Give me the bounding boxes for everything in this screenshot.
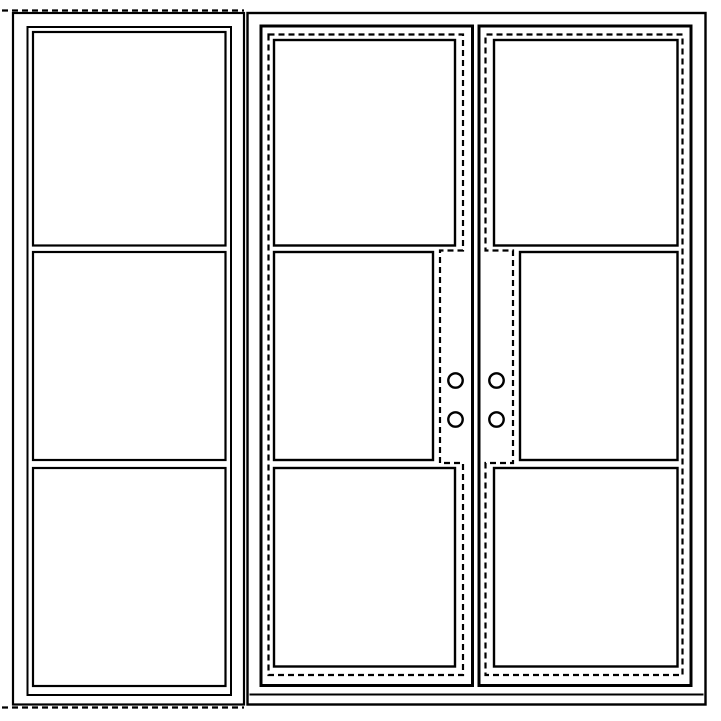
left-leaf-glass-lite-middle (274, 252, 433, 460)
right-leaf-glass-lite-top (494, 40, 678, 246)
right-door-leaf (479, 26, 691, 686)
left-door-leaf (261, 26, 473, 686)
left-leaf-handle-hole-lower (448, 412, 462, 426)
right-leaf-handle-hole-lower (489, 412, 503, 426)
right-leaf-outline (479, 26, 691, 686)
left-leaf-glass-lite-bottom (274, 468, 455, 667)
drawing-canvas (0, 0, 721, 721)
sidelite-glass-lite-top (33, 32, 226, 246)
sidelite-outer-frame (13, 13, 244, 705)
sidelite-glass-lite-middle (33, 252, 226, 460)
door-frame (248, 13, 706, 705)
right-leaf-glass-lite-bottom (494, 468, 678, 667)
left-leaf-outline (261, 26, 473, 686)
left-leaf-glass-lite-top (274, 40, 455, 246)
right-leaf-sash-dashed-outline (486, 35, 683, 676)
right-leaf-glass-lite-middle (520, 252, 678, 460)
left-leaf-handle-hole-upper (448, 373, 462, 387)
right-leaf-handle-hole-upper (489, 373, 503, 387)
sidelite-inner-frame (28, 27, 232, 695)
door-frame-outer (248, 13, 706, 705)
sidelite-glass-lite-bottom (33, 468, 226, 686)
door-elevation-drawing (0, 0, 721, 721)
sidelite-panel (2, 11, 244, 708)
